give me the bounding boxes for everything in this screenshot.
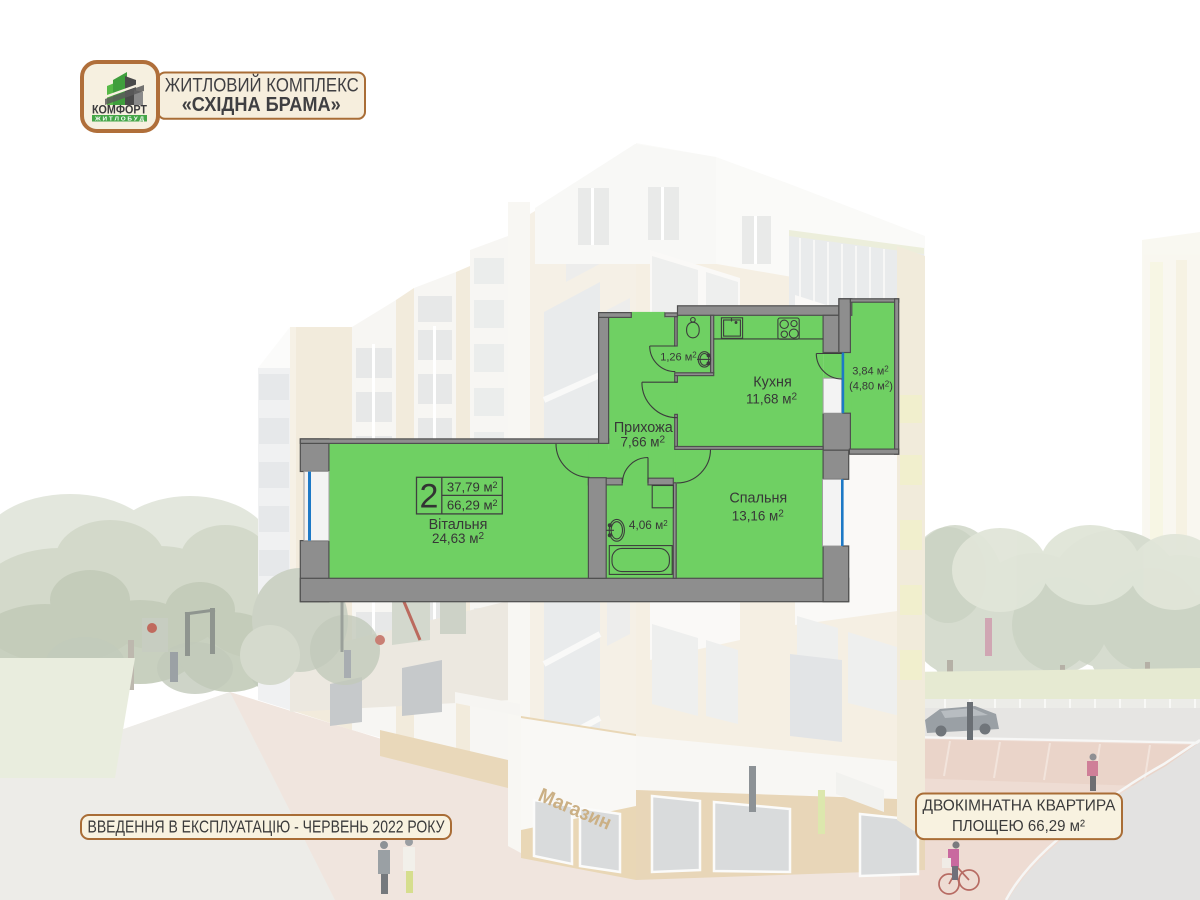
svg-text:11,68 м2: 11,68 м2 bbox=[746, 392, 797, 407]
svg-text:4,06 м2: 4,06 м2 bbox=[629, 518, 668, 532]
svg-text:ПЛОЩЕЮ 66,29 м²: ПЛОЩЕЮ 66,29 м² bbox=[952, 818, 1086, 835]
svg-text:ДВОКІМНАТНА КВАРТИРА: ДВОКІМНАТНА КВАРТИРА bbox=[923, 798, 1116, 815]
svg-text:2: 2 bbox=[420, 478, 439, 516]
svg-text:3,84 м2: 3,84 м2 bbox=[852, 365, 889, 378]
svg-text:Кухня: Кухня bbox=[753, 375, 792, 391]
svg-text:«СХІДНА БРАМА»: «СХІДНА БРАМА» bbox=[182, 94, 341, 116]
svg-text:Спальня: Спальня bbox=[729, 491, 787, 507]
svg-text:37,79 м2: 37,79 м2 bbox=[447, 480, 498, 495]
svg-text:КОМФОРТ: КОМФОРТ bbox=[92, 105, 147, 117]
svg-text:7,66 м2: 7,66 м2 bbox=[621, 434, 666, 449]
svg-text:ВВЕДЕННЯ В ЕКСПЛУАТАЦІЮ - ЧЕРВ: ВВЕДЕННЯ В ЕКСПЛУАТАЦІЮ - ЧЕРВЕНЬ 2022 Р… bbox=[88, 817, 446, 837]
svg-text:66,29 м2: 66,29 м2 bbox=[447, 498, 498, 513]
svg-text:Ж И Т Л О Б У Д: Ж И Т Л О Б У Д bbox=[94, 116, 144, 122]
svg-text:13,16 м2: 13,16 м2 bbox=[732, 509, 784, 524]
svg-text:24,63 м2: 24,63 м2 bbox=[432, 531, 484, 546]
svg-text:1,26 м2: 1,26 м2 bbox=[660, 351, 697, 364]
svg-text:ЖИТЛОВИЙ КОМПЛЕКС: ЖИТЛОВИЙ КОМПЛЕКС bbox=[165, 73, 359, 97]
